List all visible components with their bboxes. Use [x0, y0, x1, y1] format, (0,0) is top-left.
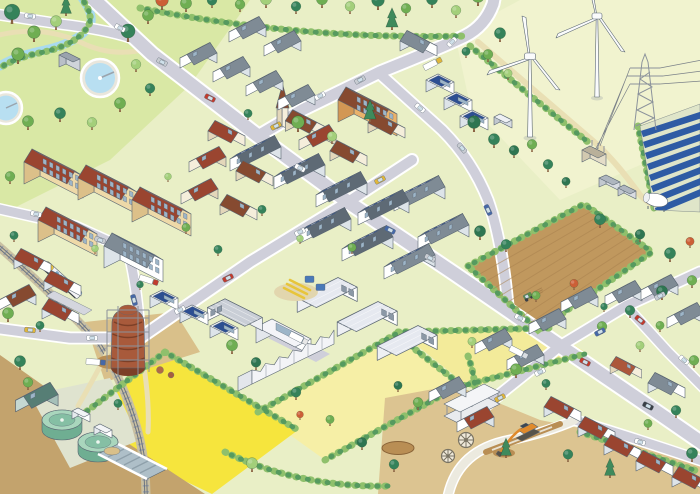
- cable-reel-2: [442, 450, 455, 463]
- machine-1: [305, 276, 314, 283]
- sewage-basin-2: [0, 92, 22, 124]
- red-bush-2: [168, 372, 174, 378]
- town-illustration: Isometric illustration of a small town a…: [0, 0, 700, 494]
- car-icon: [24, 327, 35, 333]
- machine-2: [316, 284, 325, 291]
- sewage-basin-1: [81, 59, 119, 97]
- mud-pit: [382, 442, 414, 455]
- red-bush: [157, 367, 164, 374]
- cable-reel-1: [459, 433, 474, 448]
- car-icon: [86, 335, 97, 341]
